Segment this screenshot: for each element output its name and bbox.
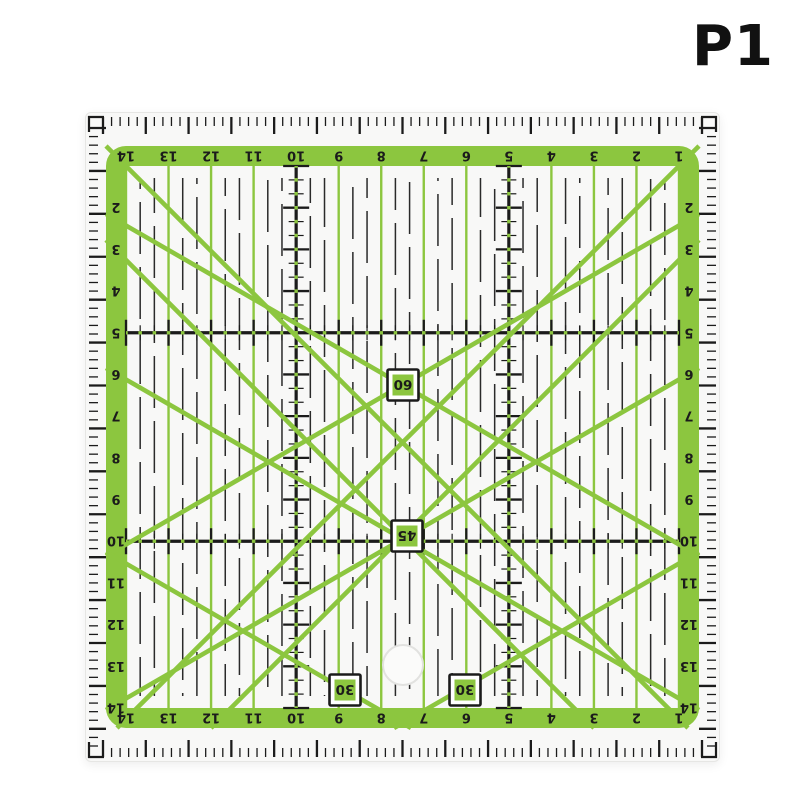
ruler-graphic: 1413121110987654321141312111098765432123… (85, 112, 720, 762)
svg-text:30: 30 (336, 681, 355, 697)
svg-text:5: 5 (684, 324, 693, 339)
svg-text:12: 12 (202, 148, 220, 163)
svg-text:2: 2 (632, 710, 641, 725)
svg-text:12: 12 (107, 616, 125, 631)
svg-text:30: 30 (456, 681, 475, 697)
svg-text:9: 9 (111, 491, 120, 506)
svg-text:5: 5 (504, 148, 513, 163)
svg-text:4: 4 (111, 283, 120, 298)
svg-text:14: 14 (107, 700, 125, 715)
svg-text:12: 12 (202, 710, 220, 725)
svg-text:10: 10 (287, 710, 305, 725)
svg-text:8: 8 (377, 148, 386, 163)
svg-text:60: 60 (394, 376, 413, 392)
svg-text:6: 6 (462, 148, 471, 163)
svg-text:13: 13 (107, 658, 125, 673)
svg-text:3: 3 (111, 241, 120, 256)
svg-text:11: 11 (107, 574, 125, 589)
svg-text:10: 10 (107, 533, 125, 548)
page-label: P1 (692, 14, 774, 79)
svg-text:3: 3 (684, 241, 693, 256)
svg-text:4: 4 (684, 283, 693, 298)
svg-text:9: 9 (334, 710, 343, 725)
svg-text:8: 8 (684, 449, 693, 464)
svg-text:7: 7 (111, 408, 120, 423)
svg-text:7: 7 (419, 710, 428, 725)
svg-text:13: 13 (680, 658, 698, 673)
hang-hole (383, 645, 423, 685)
svg-text:45: 45 (398, 527, 417, 543)
svg-text:4: 4 (547, 148, 556, 163)
angle-lines (106, 146, 699, 728)
svg-text:14: 14 (680, 700, 698, 715)
svg-text:6: 6 (684, 366, 693, 381)
svg-text:8: 8 (111, 449, 120, 464)
svg-text:3: 3 (589, 710, 598, 725)
svg-text:2: 2 (111, 199, 120, 214)
svg-text:7: 7 (684, 408, 693, 423)
svg-text:3: 3 (589, 148, 598, 163)
svg-text:10: 10 (287, 148, 305, 163)
svg-text:1: 1 (674, 148, 683, 163)
svg-text:2: 2 (632, 148, 641, 163)
svg-text:11: 11 (245, 148, 263, 163)
quilting-ruler: 1413121110987654321141312111098765432123… (85, 112, 720, 762)
svg-text:6: 6 (462, 710, 471, 725)
product-photo: P1 1413121110987654321141312111098765432… (0, 0, 800, 800)
svg-text:9: 9 (334, 148, 343, 163)
svg-text:13: 13 (159, 710, 177, 725)
svg-text:10: 10 (680, 533, 698, 548)
svg-text:12: 12 (680, 616, 698, 631)
svg-text:13: 13 (159, 148, 177, 163)
svg-text:14: 14 (117, 148, 135, 163)
svg-text:2: 2 (684, 199, 693, 214)
svg-text:4: 4 (547, 710, 556, 725)
svg-text:11: 11 (245, 710, 263, 725)
svg-text:11: 11 (680, 574, 698, 589)
svg-text:9: 9 (684, 491, 693, 506)
svg-text:7: 7 (419, 148, 428, 163)
svg-text:6: 6 (111, 366, 120, 381)
svg-text:5: 5 (504, 710, 513, 725)
svg-text:8: 8 (377, 710, 386, 725)
svg-text:5: 5 (111, 324, 120, 339)
